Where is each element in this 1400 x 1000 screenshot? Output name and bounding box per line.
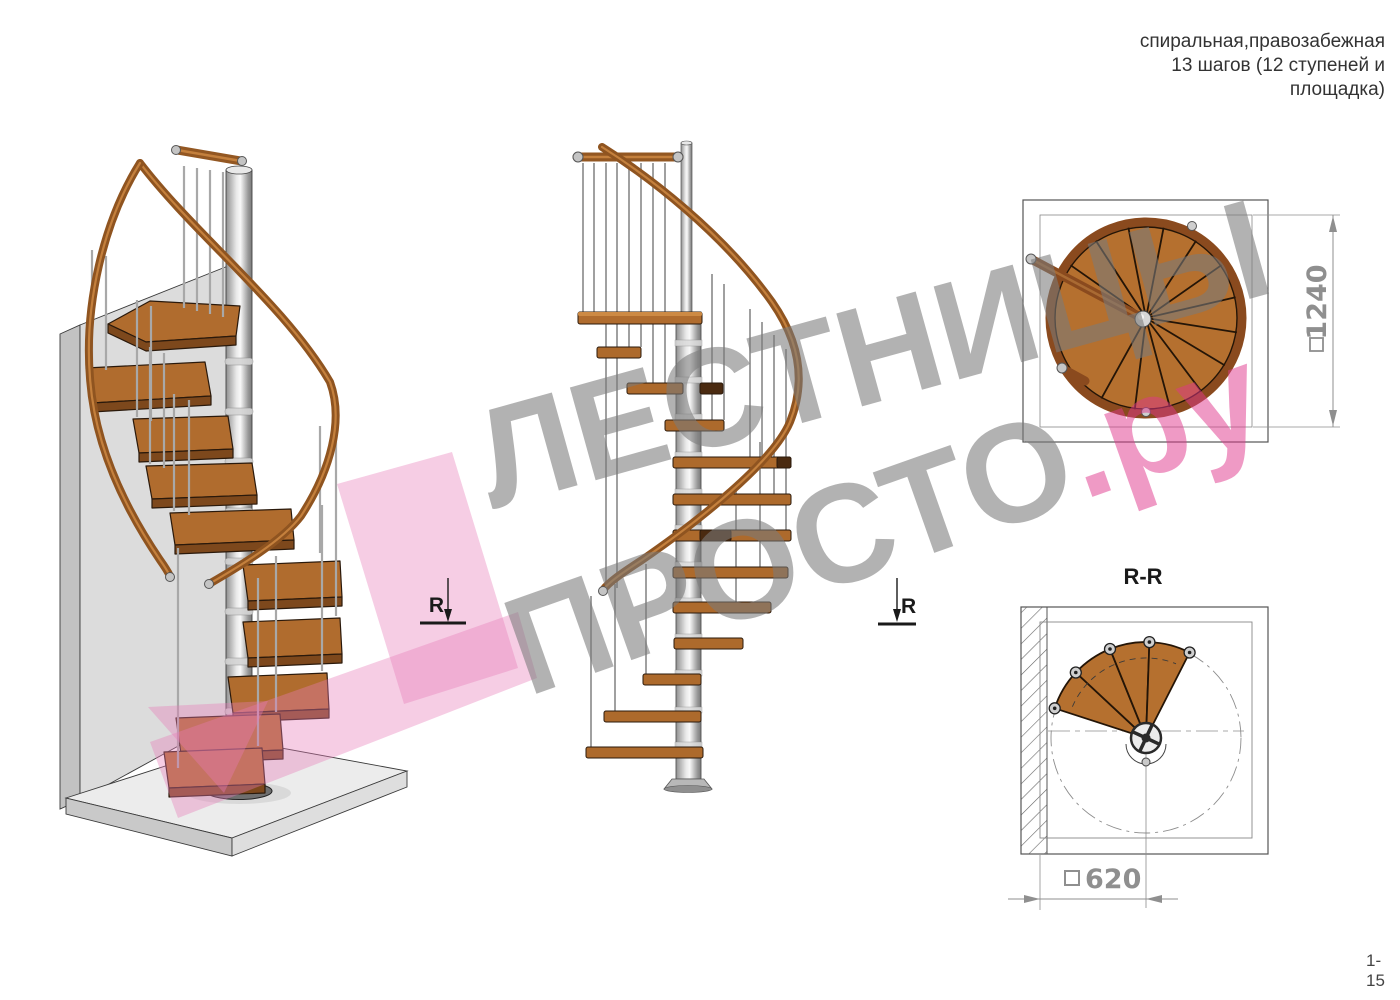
section-marker-letter: R (901, 595, 916, 618)
square-symbol (1065, 871, 1079, 885)
arrow-up-icon (1329, 216, 1337, 232)
arrow-down-icon (893, 609, 901, 622)
title-line-2: 13 шагов (12 ступеней и (1140, 54, 1385, 78)
drawing-sheet: 1240 R-R (0, 0, 1400, 1000)
tread-fan (1055, 642, 1190, 738)
rail-end-cap (172, 146, 181, 155)
column-top-cap (681, 141, 692, 145)
arrow-right-icon (1024, 895, 1040, 903)
section-title: R-R (1123, 564, 1162, 589)
staircase-drawing: 1240 R-R (0, 0, 1400, 1000)
section-marker-letter: R (429, 594, 444, 617)
section-view: R-R (1008, 564, 1268, 910)
title-line-3: площадка) (1140, 78, 1385, 102)
page-number: 1-15 (1366, 951, 1400, 991)
arrow-left-icon (1146, 895, 1162, 903)
rail-end-cap (166, 573, 175, 582)
section-dimension-value: 620 (1085, 864, 1141, 895)
column-top-cap (226, 166, 252, 174)
column-base-elevation (664, 786, 712, 793)
plan-dimension-value: 1240 (1302, 264, 1333, 339)
rail-end-cap (573, 152, 583, 162)
drawing-title: спиральная,правозабежная 13 шагов (12 ст… (1140, 30, 1385, 102)
dimension-620: 620 (1008, 855, 1178, 910)
rail-end-cap (205, 580, 214, 589)
rail-end-cap (673, 152, 683, 162)
rail-end-cap (238, 157, 247, 166)
title-line-1: спиральная,правозабежная (1140, 30, 1385, 54)
wall-side-face (60, 325, 80, 809)
center-column-upper (681, 143, 692, 313)
wall-hatch (1021, 607, 1047, 854)
arrow-down-icon (1329, 410, 1337, 426)
